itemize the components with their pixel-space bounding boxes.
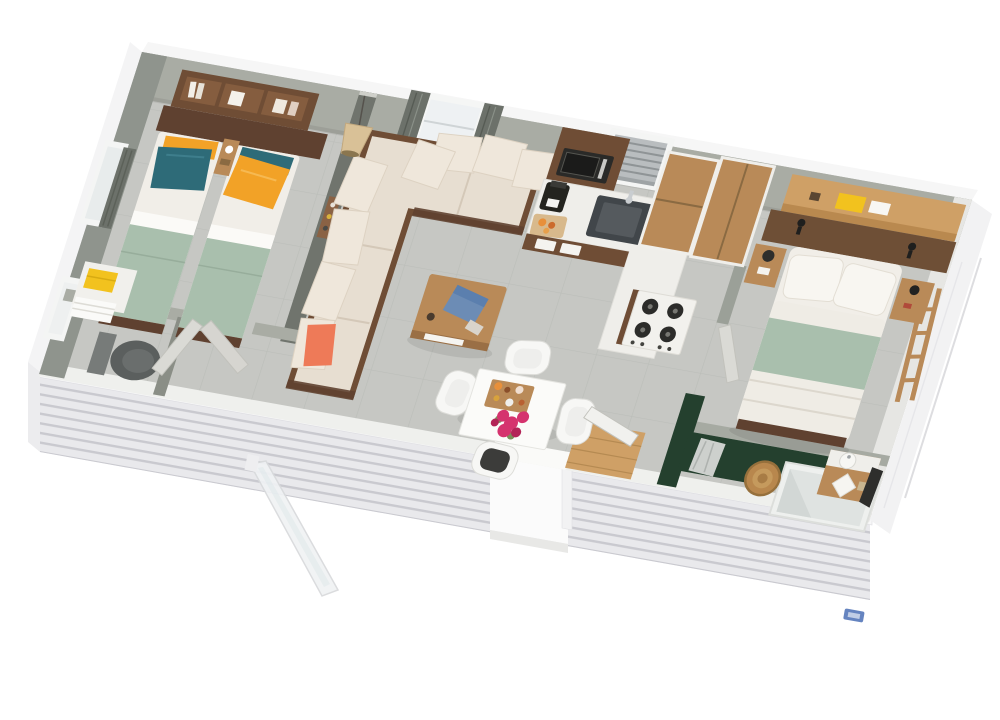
coral-cushion — [303, 324, 336, 366]
dining-chair-top — [503, 340, 553, 375]
cutting-board — [529, 213, 568, 238]
terrace-post — [562, 461, 572, 530]
siding-west-face — [28, 362, 40, 452]
floor-plan-render: Isometric 3D floor plan of a mobile home… — [0, 0, 1000, 720]
